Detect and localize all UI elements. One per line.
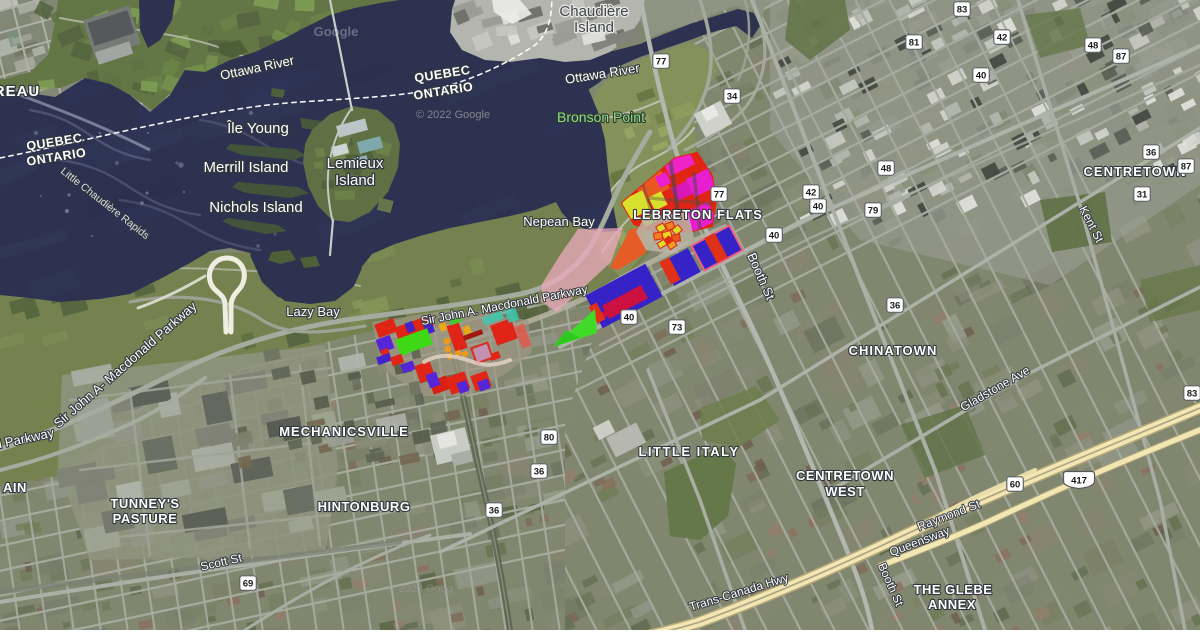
svg-text:LEBRETON FLATS: LEBRETON FLATS: [633, 207, 763, 222]
svg-text:Island: Island: [335, 172, 375, 189]
svg-text:73: 73: [672, 322, 683, 333]
svg-text:Island: Island: [574, 19, 614, 36]
svg-text:36: 36: [534, 466, 545, 477]
svg-text:40: 40: [976, 70, 987, 81]
svg-text:40: 40: [813, 201, 824, 212]
svg-text:31: 31: [1137, 189, 1148, 200]
svg-text:Bronson Point: Bronson Point: [557, 109, 645, 125]
svg-text:87: 87: [1116, 51, 1127, 62]
svg-text:Nepean Bay: Nepean Bay: [523, 214, 595, 229]
svg-text:© 2022 Goog: © 2022 Goog: [387, 583, 453, 595]
svg-text:417: 417: [1071, 476, 1087, 487]
svg-text:36: 36: [890, 300, 901, 311]
svg-text:77: 77: [656, 56, 667, 67]
svg-text:Merrill Island: Merrill Island: [203, 159, 288, 176]
svg-text:34: 34: [727, 91, 738, 102]
svg-text:WEST: WEST: [825, 484, 865, 499]
svg-text:42: 42: [997, 32, 1008, 43]
svg-text:CHINATOWN: CHINATOWN: [849, 343, 938, 358]
svg-text:87: 87: [1181, 161, 1192, 172]
svg-text:ANNEX: ANNEX: [928, 597, 976, 612]
svg-text:PASTURE: PASTURE: [113, 511, 178, 526]
svg-text:© 2022 Google: © 2022 Google: [416, 109, 490, 121]
svg-text:40: 40: [624, 312, 635, 323]
svg-text:36: 36: [1146, 147, 1157, 158]
svg-text:40: 40: [769, 230, 780, 241]
svg-text:Google: Google: [314, 24, 359, 39]
svg-text:Lemieux: Lemieux: [327, 155, 384, 172]
svg-text:42: 42: [806, 187, 817, 198]
svg-text:48: 48: [1088, 40, 1099, 51]
svg-text:80: 80: [544, 432, 555, 443]
svg-text:79: 79: [868, 205, 879, 216]
svg-text:TUNNEY'S: TUNNEY'S: [110, 496, 179, 511]
svg-text:REAU: REAU: [0, 83, 40, 100]
svg-text:Chaudière: Chaudière: [559, 3, 628, 20]
svg-text:CENTRETOWN: CENTRETOWN: [796, 468, 894, 483]
svg-text:Île Young: Île Young: [226, 120, 289, 137]
svg-text:AIN: AIN: [3, 480, 27, 495]
svg-text:69: 69: [243, 578, 254, 589]
svg-text:CENTRETOWN: CENTRETOWN: [1084, 164, 1187, 179]
svg-text:Nichols Island: Nichols Island: [209, 199, 302, 216]
svg-text:36: 36: [489, 505, 500, 516]
svg-text:Lazy Bay: Lazy Bay: [286, 304, 340, 319]
svg-text:LITTLE ITALY: LITTLE ITALY: [638, 444, 739, 459]
svg-text:THE GLEBE: THE GLEBE: [914, 582, 993, 597]
svg-text:HINTONBURG: HINTONBURG: [318, 499, 411, 514]
svg-text:77: 77: [714, 189, 725, 200]
svg-text:MECHANICSVILLE: MECHANICSVILLE: [279, 424, 409, 439]
svg-text:60: 60: [1010, 479, 1021, 490]
svg-text:81: 81: [909, 37, 920, 48]
svg-text:83: 83: [1187, 388, 1198, 399]
svg-text:83: 83: [957, 4, 968, 15]
svg-text:48: 48: [881, 163, 892, 174]
